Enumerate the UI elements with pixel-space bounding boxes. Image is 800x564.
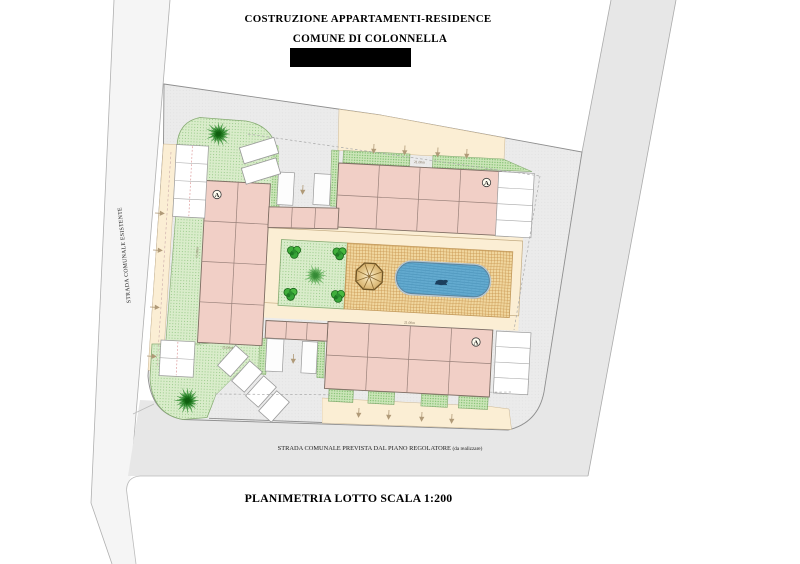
svg-text:A: A [474, 339, 479, 346]
svg-text:STRADA COMUNALE PREVISTA DAL P: STRADA COMUNALE PREVISTA DAL PIANO REGOL… [278, 445, 483, 452]
svg-text:A: A [215, 192, 220, 199]
svg-text:15.00m: 15.00m [222, 346, 233, 351]
svg-text:21.00m: 21.00m [404, 321, 415, 326]
svg-text:A: A [484, 180, 489, 187]
svg-text:21.00m: 21.00m [414, 160, 425, 165]
svg-text:15.00m: 15.00m [195, 247, 200, 258]
